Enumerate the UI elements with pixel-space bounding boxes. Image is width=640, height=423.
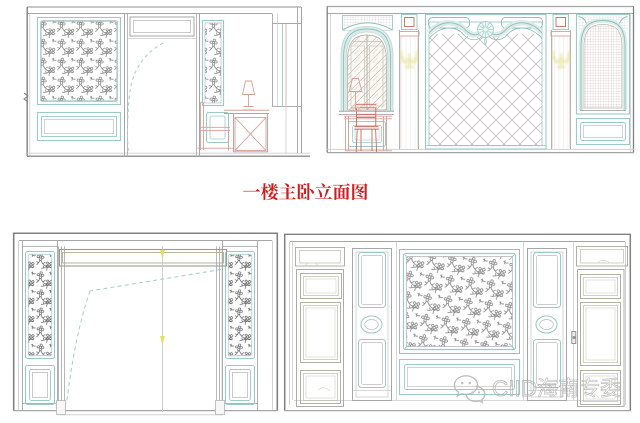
svg-text:CIID: CIID [492, 376, 537, 401]
